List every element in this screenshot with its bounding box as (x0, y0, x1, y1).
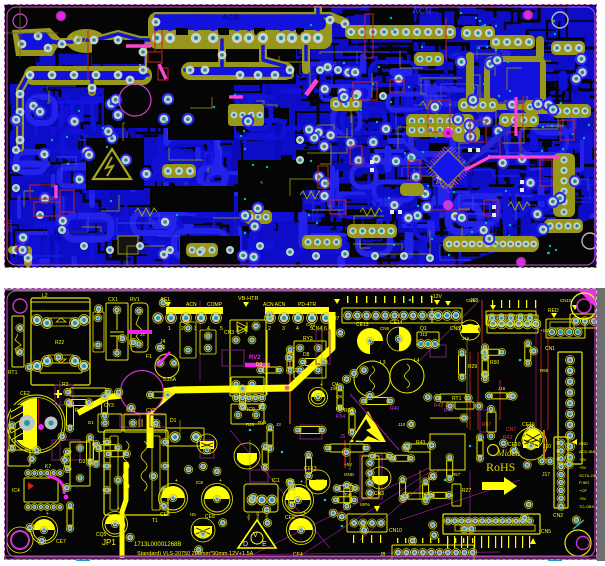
svg-text:J5: J5 (340, 434, 346, 440)
svg-text:D8: D8 (303, 352, 310, 358)
svg-text:IC8: IC8 (196, 480, 204, 485)
svg-text:H5: H5 (190, 512, 196, 517)
svg-text:+5V: +5V (344, 462, 352, 467)
svg-text:CN7: CN7 (428, 476, 437, 481)
svg-text:3: 3 (282, 326, 285, 332)
svg-text:R40: R40 (390, 406, 399, 412)
svg-text:D: D (243, 541, 248, 548)
svg-text:R54: R54 (336, 414, 345, 420)
svg-text:L2: L2 (42, 293, 48, 299)
svg-text:+: + (300, 479, 303, 485)
svg-text:CN1: CN1 (545, 346, 555, 352)
svg-text:Tool: Tool (344, 492, 352, 497)
svg-text:R3: R3 (62, 382, 69, 388)
svg-text:1: 1 (168, 326, 171, 332)
svg-text:PD-4TR: PD-4TR (298, 302, 316, 308)
svg-text:R63: R63 (503, 435, 512, 441)
svg-text:R27: R27 (316, 478, 325, 483)
svg-text:+: + (320, 382, 323, 388)
svg-text:ACN: ACN (186, 302, 197, 308)
svg-text:R27: R27 (462, 488, 471, 494)
svg-text:RT1: RT1 (452, 396, 462, 402)
svg-text:J30: J30 (330, 386, 338, 391)
svg-text:D3: D3 (79, 459, 86, 465)
svg-text:J17: J17 (542, 472, 550, 478)
svg-text:+: + (46, 511, 49, 517)
svg-text:1713L00001268B: 1713L00001268B (134, 542, 181, 548)
svg-text:+12V: +12V (540, 328, 551, 333)
svg-text:CN8: CN8 (450, 326, 460, 332)
svg-text:CN9: CN9 (466, 298, 475, 303)
svg-text:TO-OBX: TO-OBX (579, 504, 595, 509)
svg-text:J15: J15 (462, 336, 470, 341)
svg-text:IC1: IC1 (272, 478, 280, 484)
svg-text:CE2: CE2 (20, 391, 30, 397)
svg-text:+5V: +5V (579, 496, 587, 501)
svg-text:COMP: COMP (207, 302, 223, 308)
svg-text:J10: J10 (398, 422, 406, 427)
svg-text:CX1: CX1 (108, 297, 118, 303)
svg-text:2: 2 (268, 326, 271, 332)
svg-text:ACD-5NK: ACD-5NK (579, 449, 597, 454)
svg-text:CY3: CY3 (104, 403, 114, 409)
svg-text:SD40: SD40 (8, 219, 14, 232)
svg-text:L4: L4 (414, 358, 420, 364)
svg-text:R5a: R5a (336, 406, 345, 411)
svg-text:D0: D0 (256, 362, 263, 368)
svg-text:ACN ACN: ACN ACN (263, 302, 286, 308)
svg-text:R57: R57 (452, 472, 461, 477)
svg-text:J16: J16 (498, 386, 506, 391)
svg-text:CN7: CN7 (506, 427, 516, 433)
svg-text:CE3: CE3 (160, 512, 170, 518)
svg-text:GND: GND (344, 472, 355, 477)
svg-text:+OF: +OF (579, 488, 587, 493)
svg-text:+5V: +5V (579, 457, 587, 462)
svg-text:D1: D1 (88, 420, 94, 425)
svg-text:GND: GND (579, 441, 588, 446)
svg-text:3: 3 (194, 326, 197, 332)
svg-text:J10: J10 (543, 444, 551, 450)
svg-text:R59: R59 (540, 368, 549, 373)
svg-text:Midea: Midea (496, 448, 520, 458)
svg-text:RoHS: RoHS (486, 460, 515, 474)
svg-text:5: 5 (220, 326, 223, 332)
svg-text:VB-HTR: VB-HTR (238, 296, 259, 302)
svg-text:J3: J3 (276, 422, 281, 427)
svg-text:E: E (262, 541, 267, 548)
svg-text:+: + (117, 506, 120, 512)
svg-text:R22: R22 (55, 340, 64, 346)
svg-text:6: 6 (324, 326, 327, 332)
svg-text:4: 4 (207, 326, 210, 332)
svg-text:J4: J4 (140, 332, 145, 337)
svg-text:RY2: RY2 (152, 424, 161, 429)
svg-text:RY3: RY3 (303, 336, 313, 342)
svg-text:D1: D1 (170, 418, 177, 424)
svg-text:K7: K7 (45, 464, 51, 470)
svg-text:JP1: JP1 (102, 538, 116, 547)
svg-text:CE14: CE14 (390, 320, 403, 326)
svg-text:+: + (175, 478, 178, 484)
svg-text:R20: R20 (246, 422, 255, 427)
svg-text:P-5EI: P-5EI (579, 480, 589, 485)
svg-text:CY2: CY2 (146, 408, 156, 414)
svg-text:R29: R29 (468, 364, 477, 370)
svg-text:+: + (219, 478, 222, 484)
svg-text:CN2: CN2 (553, 513, 563, 519)
svg-text:R43: R43 (434, 403, 443, 409)
svg-text:CN6: CN6 (380, 326, 389, 331)
svg-text:RY1: RY1 (258, 420, 267, 425)
svg-text:4: 4 (296, 326, 299, 332)
svg-text:CE10: CE10 (522, 422, 535, 428)
svg-text:RT1: RT1 (8, 370, 18, 376)
svg-text:18T: 18T (15, 243, 21, 252)
svg-text:2: 2 (181, 326, 184, 332)
svg-text:T1: T1 (152, 518, 158, 524)
svg-text:+8V: +8V (246, 513, 251, 521)
svg-text:CE13: CE13 (356, 322, 369, 328)
svg-text:CN10: CN10 (560, 298, 572, 303)
svg-text:R54: R54 (344, 408, 353, 414)
svg-text:Q6: Q6 (336, 394, 343, 399)
svg-text:+: + (303, 510, 306, 516)
svg-text:R50: R50 (490, 360, 499, 366)
svg-text:CE7: CE7 (56, 539, 66, 545)
svg-text:R43: R43 (416, 440, 425, 446)
svg-text:J13: J13 (420, 332, 428, 337)
svg-text:IC4: IC4 (12, 488, 20, 494)
svg-text:RV1: RV1 (130, 297, 140, 303)
svg-text:5.25A: 5.25A (163, 377, 177, 383)
svg-text:ACN: ACN (222, 13, 240, 22)
svg-text:F1: F1 (146, 354, 152, 360)
svg-text:L3: L3 (380, 360, 386, 366)
svg-text:CN3: CN3 (224, 330, 234, 336)
svg-text:CN10: CN10 (389, 528, 402, 534)
svg-text:RV2: RV2 (249, 355, 261, 361)
svg-text:ISPa: ISPa (360, 502, 370, 507)
svg-text:R4: R4 (75, 408, 82, 414)
svg-text:R35: R35 (286, 478, 295, 483)
svg-text:CN3: CN3 (306, 322, 315, 327)
svg-text:+5V: +5V (579, 465, 587, 470)
svg-text:CE8: CE8 (205, 514, 215, 520)
svg-text:CN5: CN5 (541, 529, 551, 535)
svg-text:V: V (253, 532, 258, 539)
